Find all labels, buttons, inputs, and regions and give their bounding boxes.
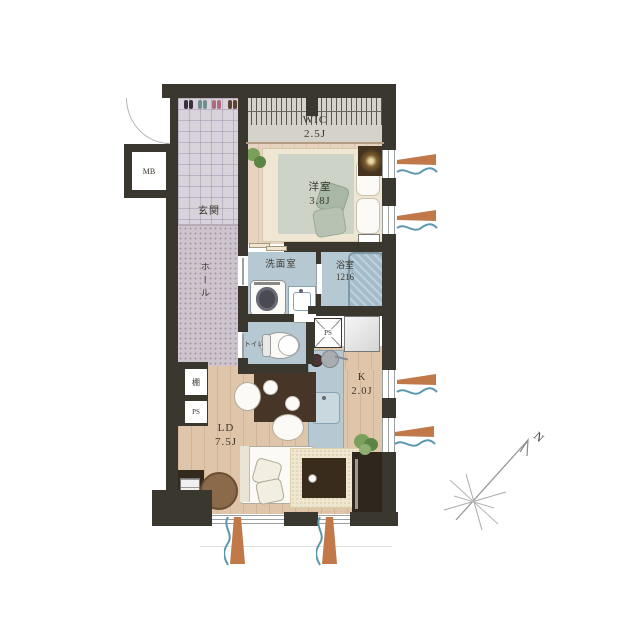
shoes-icon <box>203 100 207 109</box>
kitchen-sink <box>312 392 340 424</box>
shoes-icon <box>228 100 232 109</box>
bed-pillow <box>356 198 380 234</box>
wall-hall-divider <box>238 286 248 332</box>
wall-corner-block <box>152 490 212 526</box>
window-symbol-icon <box>396 208 438 236</box>
hall-label: ホール <box>198 252 210 310</box>
dining-chair <box>234 382 261 411</box>
wall-bottom-1 <box>284 512 318 526</box>
window-symbol-icon <box>396 372 438 400</box>
wall-right-3 <box>382 234 396 370</box>
bed-cushion <box>312 206 347 239</box>
shoes-icon <box>189 100 193 109</box>
kitchen-name: K <box>344 371 380 385</box>
hall-name: ホール <box>200 262 210 301</box>
wall-mb-top <box>124 144 178 152</box>
kitchen-size: 2.0J <box>344 385 380 399</box>
wall-right-4 <box>382 398 396 418</box>
nightstand <box>358 146 384 176</box>
coffee-table-knob <box>308 474 317 483</box>
bedroom-sliding-door <box>266 246 287 251</box>
wic-name: WIC <box>282 113 348 127</box>
refrigerator-space <box>344 316 380 352</box>
compass-north-icon: N <box>436 414 560 538</box>
sofa-back <box>240 446 250 502</box>
wall-bottom-2 <box>350 512 398 526</box>
wall-bedroom-south <box>284 242 392 252</box>
wic-threshold-line <box>246 142 384 144</box>
floorplan-canvas: MB PS 棚 PS WIC 2.5J 玄関 洋室 3.8J ホール 洗面室 浴… <box>0 0 640 639</box>
washroom-label: 洗面室 <box>250 259 312 271</box>
wic-size: 2.5J <box>282 127 348 141</box>
bedroom-name: 洋室 <box>292 181 348 195</box>
bedroom-window <box>382 150 396 178</box>
living-dining-label: LD 7.5J <box>204 421 248 450</box>
dining-plate <box>263 380 278 395</box>
wall-bath-south <box>308 306 392 316</box>
washroom-name: 洗面室 <box>265 260 297 270</box>
shoes-icon <box>184 100 188 109</box>
wall-right-1 <box>382 84 396 150</box>
tv-screen <box>355 459 358 509</box>
meter-box: MB <box>132 152 166 190</box>
washing-machine-panel <box>254 282 280 285</box>
wall-entry-divider <box>238 98 248 256</box>
living-dining-size: 7.5J <box>204 435 248 449</box>
shelf-label: 棚 <box>192 377 200 388</box>
bathroom-name: 浴室 <box>320 260 370 272</box>
shoes-icon <box>198 100 202 109</box>
dining-plate <box>285 396 300 411</box>
wall-toilet-east <box>306 322 314 364</box>
meter-box-label: MB <box>143 167 155 176</box>
kitchen-window <box>382 370 396 398</box>
kitchen-label: K 2.0J <box>344 371 380 398</box>
toilet-seat <box>278 335 299 356</box>
sink-faucet <box>322 396 326 400</box>
wall-mb-bottom <box>124 190 178 198</box>
stove-frying-pan <box>321 350 339 368</box>
wall-toilet-south <box>238 364 308 374</box>
toilet-name: トイレ <box>244 341 264 348</box>
washing-machine-drum <box>256 287 278 311</box>
wall-right-2 <box>382 178 396 206</box>
window-symbol-icon <box>394 424 436 452</box>
wic-label: WIC 2.5J <box>282 113 348 142</box>
toilet-label: トイレ <box>241 341 267 349</box>
bathroom-size: 1216 <box>320 272 370 284</box>
washroom-door <box>242 258 244 285</box>
pipe-space-label: PS <box>192 408 200 416</box>
genkan-name: 玄関 <box>188 205 230 218</box>
wall-top <box>162 84 392 98</box>
pipe-space-box: PS <box>314 318 342 348</box>
compass-north-label: N <box>531 429 547 445</box>
bathroom-label: 浴室 1216 <box>320 260 370 283</box>
bedroom-size: 3.8J <box>292 195 348 209</box>
window-symbol-icon <box>316 516 344 566</box>
shoes-icon <box>233 100 237 109</box>
shoes-icon <box>212 100 216 109</box>
window-symbol-icon <box>224 516 252 566</box>
bedroom-window <box>382 206 396 234</box>
shelf-box: 棚 <box>184 368 208 396</box>
living-plant-icon <box>359 444 371 455</box>
window-symbol-icon <box>396 152 438 180</box>
vanity-faucet <box>299 289 303 293</box>
bedroom-plant-icon <box>254 156 266 168</box>
entrance-door-swing <box>126 98 170 144</box>
living-dining-name: LD <box>204 421 248 435</box>
bedroom-label: 洋室 3.8J <box>292 181 348 208</box>
genkan-label: 玄関 <box>188 205 230 218</box>
pipe-space-label: PS <box>323 329 333 337</box>
wall-washroom-south <box>238 314 294 322</box>
wall-left <box>166 98 178 490</box>
dining-chair <box>272 414 304 441</box>
shoes-icon <box>217 100 221 109</box>
